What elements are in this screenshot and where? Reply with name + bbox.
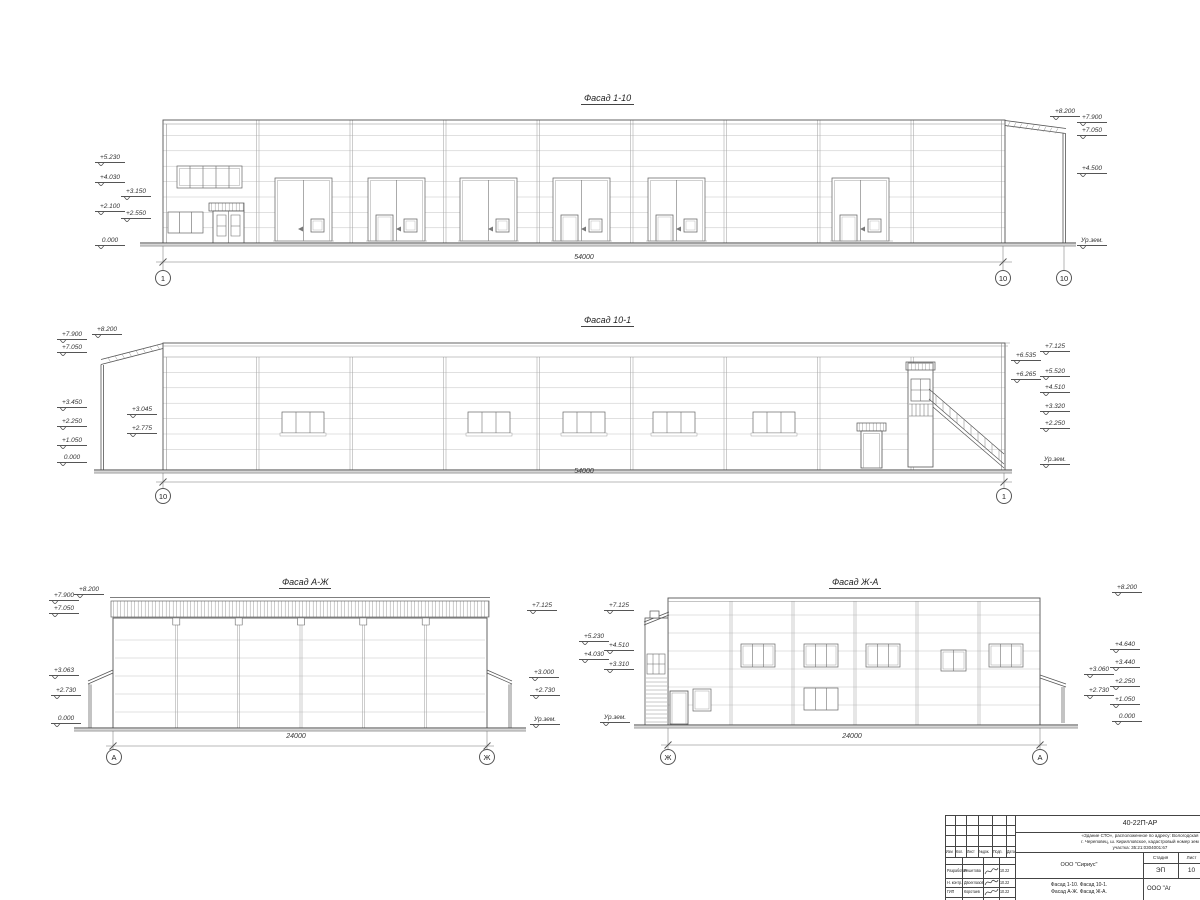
elevation-mark: +3.150 <box>121 187 151 197</box>
dimension-label: 54000 <box>564 254 604 261</box>
strip-windows <box>280 412 797 436</box>
lower-openings <box>670 688 838 724</box>
facade-zh-a-drawing <box>634 598 1078 749</box>
row-date: 10.22 <box>1000 878 1009 887</box>
facade-title-10-1: Фасад 10-1 <box>581 315 634 327</box>
elev-mark: 0.000 <box>95 236 125 246</box>
dimension-label: 54000 <box>564 468 604 475</box>
ground-level-mark: Ур.зем. <box>1040 455 1070 465</box>
axis-bubble: Ж <box>479 749 495 765</box>
elevation-mark: +7.900 <box>49 591 79 601</box>
side-window <box>168 212 203 233</box>
elevation-mark: +3.310 <box>604 660 634 670</box>
axis-bubble: А <box>106 749 122 765</box>
col-podp: Подп. <box>993 846 1005 857</box>
divider <box>945 897 1015 898</box>
elevation-mark: +2.250 <box>57 417 87 427</box>
stage-label: Стадия <box>1143 852 1178 863</box>
entrance-door <box>209 203 244 243</box>
signature <box>984 865 999 877</box>
upper-windows <box>741 644 1023 671</box>
document-number: 40-22П-АР <box>1015 815 1200 832</box>
elevation-mark: +1.050 <box>1110 695 1140 705</box>
project-line: участка: 35:21:0304001:67 <box>1015 845 1200 851</box>
drawing-sheet: Фасад 1-10 Фасад 10-1 Фасад А-Ж Фасад Ж-… <box>0 0 1200 900</box>
elevation-mark: +3.060 <box>1084 665 1114 675</box>
dimension-label: 24000 <box>276 733 316 740</box>
col-kol: Кол. <box>956 846 965 857</box>
elevation-mark: +4.030 <box>95 173 125 183</box>
elevation-mark: +2.730 <box>51 686 81 696</box>
axis-bubble: 1 <box>155 270 171 286</box>
rear-door <box>857 423 886 468</box>
row-role: ГИП <box>947 887 954 897</box>
elevation-mark: +3.045 <box>127 405 157 415</box>
facade-title-a-zh: Фасад А-Ж <box>279 577 331 589</box>
elevation-mark: +7.125 <box>527 601 557 611</box>
ground-level-mark: Ур.зем. <box>530 715 560 725</box>
elevation-mark: +1.050 <box>57 436 87 446</box>
elevation-mark: +6.265 <box>1011 370 1041 380</box>
title-block: Изм Кол. Лист №док. Подп. Дата Разработа… <box>945 815 1200 900</box>
sheet-label: Лист <box>1178 852 1200 863</box>
elevation-mark: +2.250 <box>1110 677 1140 687</box>
elevation-mark: +8.200 <box>1050 107 1080 117</box>
elevation-mark: 0.000 <box>51 714 81 724</box>
sheet-number: 10 <box>1178 863 1200 878</box>
elevation-mark: 0.000 <box>57 453 87 463</box>
stair-tower <box>906 362 935 467</box>
elevation-mark: +7.050 <box>1077 126 1107 136</box>
facade-a-zh-drawing <box>74 598 526 750</box>
row-name: Коротаев <box>964 887 980 897</box>
ground-level-mark: Ур.зем. <box>600 713 630 723</box>
row-name: Решетова <box>964 864 981 878</box>
elevation-mark: +3.000 <box>529 668 559 678</box>
organization-2: ООО "Аг <box>1147 878 1200 900</box>
elevation-mark: +2.250 <box>1040 419 1070 429</box>
elevation-mark: +7.125 <box>604 601 634 611</box>
elevation-mark: +7.125 <box>1040 342 1070 352</box>
elevation-mark: +8.200 <box>1112 583 1142 593</box>
facade-title-1-10: Фасад 1-10 <box>581 93 634 105</box>
axis-bubble: 10 <box>155 488 171 504</box>
elevation-mark: +6.535 <box>1011 351 1041 361</box>
col-data: Дата <box>1007 846 1015 857</box>
axis-bubble: Ж <box>660 749 676 765</box>
facade-10-1-drawing <box>94 343 1012 488</box>
col-izm: Изм <box>946 846 955 857</box>
elevation-mark: +5.230 <box>95 153 125 163</box>
elevation-mark: +4.500 <box>1077 164 1107 174</box>
divider <box>945 857 1015 858</box>
axis-bubble: 10 <box>995 270 1011 286</box>
elevation-mark: +3.440 <box>1110 658 1140 668</box>
elevation-mark: 0.000 <box>1112 712 1142 722</box>
gate-doors <box>275 178 889 241</box>
external-staircase <box>929 389 1004 468</box>
row-date: 10.22 <box>1000 864 1009 878</box>
dimension-label: 24000 <box>832 733 872 740</box>
elevation-mark: +4.030 <box>579 650 609 660</box>
elevation-mark: +3.063 <box>49 666 79 676</box>
organization: ООО "Сириус" <box>1015 852 1143 878</box>
ribbon-window <box>177 166 242 188</box>
elevation-drawings <box>0 0 1200 900</box>
stage-value: ЭП <box>1143 863 1178 878</box>
sheet-title-line: Фасад 1-10. Фасад 10-1. <box>1015 882 1143 889</box>
sheet-title-line: Фасад А-Ж. Фасад Ж-А. <box>1015 889 1143 896</box>
elevation-mark: +7.900 <box>57 330 87 340</box>
row-name: Двоеглазов <box>964 878 984 887</box>
ground-level-mark: Ур.зем. <box>1077 236 1107 246</box>
elevation-mark: +7.900 <box>1077 113 1107 123</box>
elevation-mark: +2.775 <box>127 424 157 434</box>
elevation-mark: +8.200 <box>92 325 122 335</box>
elevation-mark: +4.510 <box>1040 383 1070 393</box>
elevation-mark: +2.550 <box>121 209 151 219</box>
axis-bubble: А <box>1032 749 1048 765</box>
col-list: Лист <box>967 846 977 857</box>
elevation-mark: +7.050 <box>49 604 79 614</box>
elevation-mark: +5.520 <box>1040 367 1070 377</box>
signature <box>984 887 999 897</box>
row-date: 10.22 <box>1000 887 1009 897</box>
facade-title-zh-a: Фасад Ж-А <box>829 577 881 589</box>
elevation-mark: +4.640 <box>1110 640 1140 650</box>
elevation-mark: +3.450 <box>57 398 87 408</box>
stair-tower-left <box>644 611 669 725</box>
elevation-mark: +3.320 <box>1040 402 1070 412</box>
col-ndok: №док. <box>979 846 991 857</box>
row-role: Н. контр. <box>947 878 962 887</box>
elevation-mark: +2.730 <box>530 686 560 696</box>
facade-1-10-drawing <box>140 120 1076 270</box>
axis-bubble: 1 <box>996 488 1012 504</box>
axis-bubble: 10 <box>1056 270 1072 286</box>
elevation-mark: +7.050 <box>57 343 87 353</box>
